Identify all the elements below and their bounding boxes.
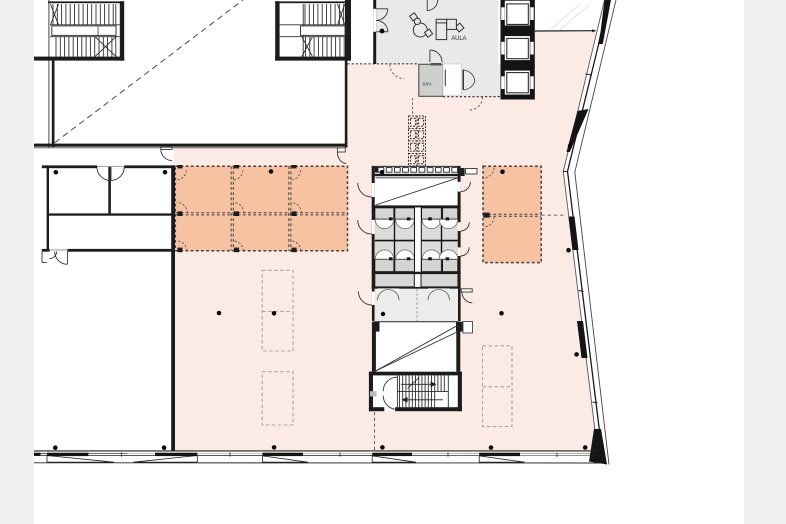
svg-text:AULA: AULA bbox=[451, 36, 466, 42]
svg-text:SIIV.: SIIV. bbox=[422, 81, 432, 86]
